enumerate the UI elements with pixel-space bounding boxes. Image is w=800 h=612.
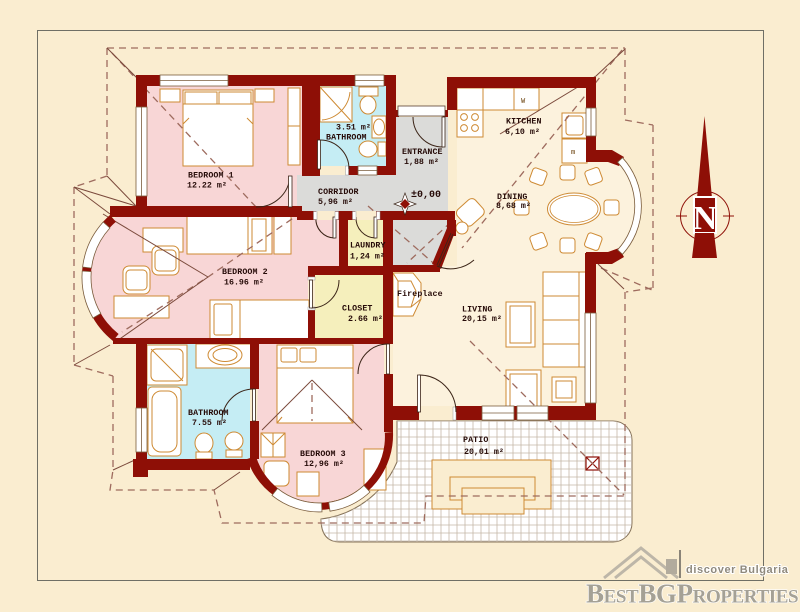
svg-text:BATHROOM: BATHROOM: [326, 134, 367, 143]
svg-text:BestBGProperties: BestBGProperties: [586, 579, 798, 609]
svg-text:16.96 m²: 16.96 m²: [224, 279, 264, 288]
svg-text:LAUNDRY: LAUNDRY: [350, 242, 386, 251]
svg-text:1,88 m²: 1,88 m²: [404, 158, 439, 167]
svg-text:6,10 m²: 6,10 m²: [505, 128, 540, 137]
svg-text:8,68 m²: 8,68 m²: [496, 202, 531, 211]
svg-text:±0,00: ±0,00: [411, 190, 441, 201]
svg-text:ENTRANCE: ENTRANCE: [402, 148, 443, 157]
svg-text:W: W: [521, 98, 526, 106]
svg-text:1,24 m²: 1,24 m²: [350, 253, 385, 262]
svg-text:KITCHEN: KITCHEN: [506, 118, 542, 127]
svg-text:20,01 m²: 20,01 m²: [464, 448, 504, 457]
svg-text:CORRIDOR: CORRIDOR: [318, 188, 359, 197]
svg-text:BEDROOM 1: BEDROOM 1: [188, 172, 234, 181]
svg-text:discover Bulgaria: discover Bulgaria: [686, 564, 789, 576]
svg-text:BATHROOM: BATHROOM: [188, 409, 229, 418]
svg-text:3.51 m²: 3.51 m²: [336, 124, 371, 133]
svg-text:N: N: [693, 200, 718, 237]
svg-text:m: m: [571, 149, 575, 157]
svg-text:BEDROOM 3: BEDROOM 3: [300, 450, 346, 459]
svg-text:5,96 m²: 5,96 m²: [318, 198, 353, 207]
svg-text:CLOSET: CLOSET: [342, 305, 372, 314]
svg-text:12,96 m²: 12,96 m²: [304, 460, 344, 469]
svg-text:DINING: DINING: [497, 193, 527, 202]
svg-text:LIVING: LIVING: [462, 306, 492, 315]
svg-text:7.55 m²: 7.55 m²: [192, 419, 227, 428]
svg-text:Fireplace: Fireplace: [397, 289, 443, 299]
svg-text:12.22 m²: 12.22 m²: [187, 182, 227, 191]
svg-text:BEDROOM 2: BEDROOM 2: [222, 268, 268, 277]
svg-text:PATIO: PATIO: [463, 436, 488, 445]
svg-text:20,15 m²: 20,15 m²: [462, 315, 502, 324]
svg-text:2.66 m²: 2.66 m²: [348, 315, 383, 324]
